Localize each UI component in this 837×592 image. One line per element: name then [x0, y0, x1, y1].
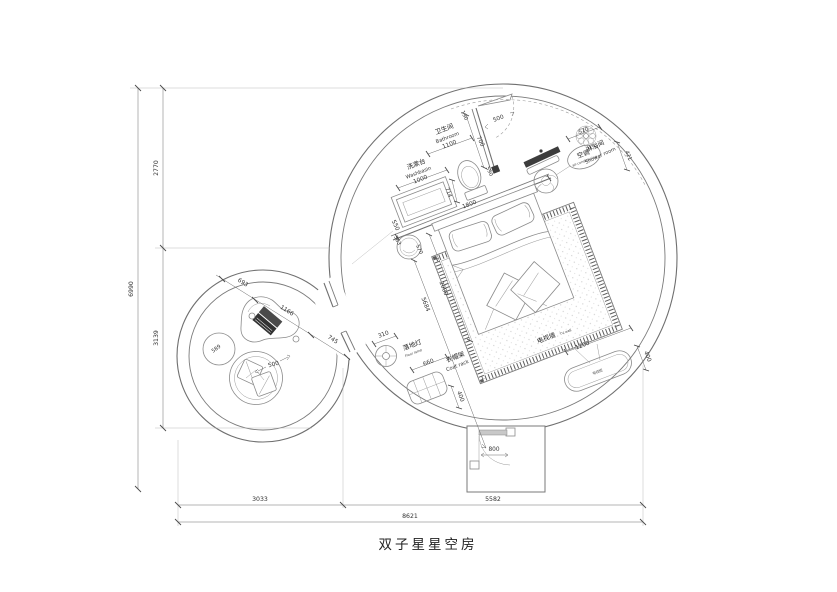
dim-shower-door-500: 500 [492, 114, 505, 124]
dim-door-800: 800 [488, 447, 499, 453]
floor-plan-drawing: 800 [0, 0, 837, 592]
entry-door-leaf [479, 430, 507, 435]
door-post-right [506, 428, 515, 436]
floor-plan-page: 800 [0, 0, 837, 592]
dim-2000: 2000 [437, 281, 448, 297]
dim-5582: 5582 [485, 496, 501, 503]
laptop [252, 306, 282, 335]
dim-3139: 3139 [153, 330, 160, 346]
door-post-left [470, 461, 479, 469]
drawing-title: 双子星星空房 [379, 537, 478, 552]
armchair: 500 [230, 352, 291, 405]
dim-3033: 3033 [252, 496, 268, 503]
entry-vestibule: 800 [467, 426, 545, 492]
dim-lamp-310: 310 [377, 330, 390, 340]
coat-rack: 660 衣帽架 Coat rack 400 [405, 349, 470, 409]
dim-tv-1200: 1200 [575, 341, 591, 352]
pouf: 589 [203, 333, 235, 365]
dim-6990: 6990 [128, 281, 135, 297]
label-tv-cabinet: 电视柜 [592, 367, 604, 376]
desk-knob [249, 313, 255, 319]
dim-693: 693 [236, 278, 249, 289]
dim-pouf-589: 589 [211, 344, 223, 355]
dim-2770: 2770 [153, 160, 160, 176]
dim-coatrack-660: 660 [422, 358, 435, 368]
dim-421: 421 [623, 150, 632, 161]
shower-valve [539, 149, 542, 152]
kidney-desk [241, 297, 299, 342]
dim-8621: 8621 [402, 513, 418, 520]
desk-knob [293, 336, 299, 342]
shower-wall [524, 146, 561, 167]
dim-550: 550 [390, 219, 400, 232]
floor-lamp: 310 落地灯 Floor lamp [372, 330, 423, 366]
